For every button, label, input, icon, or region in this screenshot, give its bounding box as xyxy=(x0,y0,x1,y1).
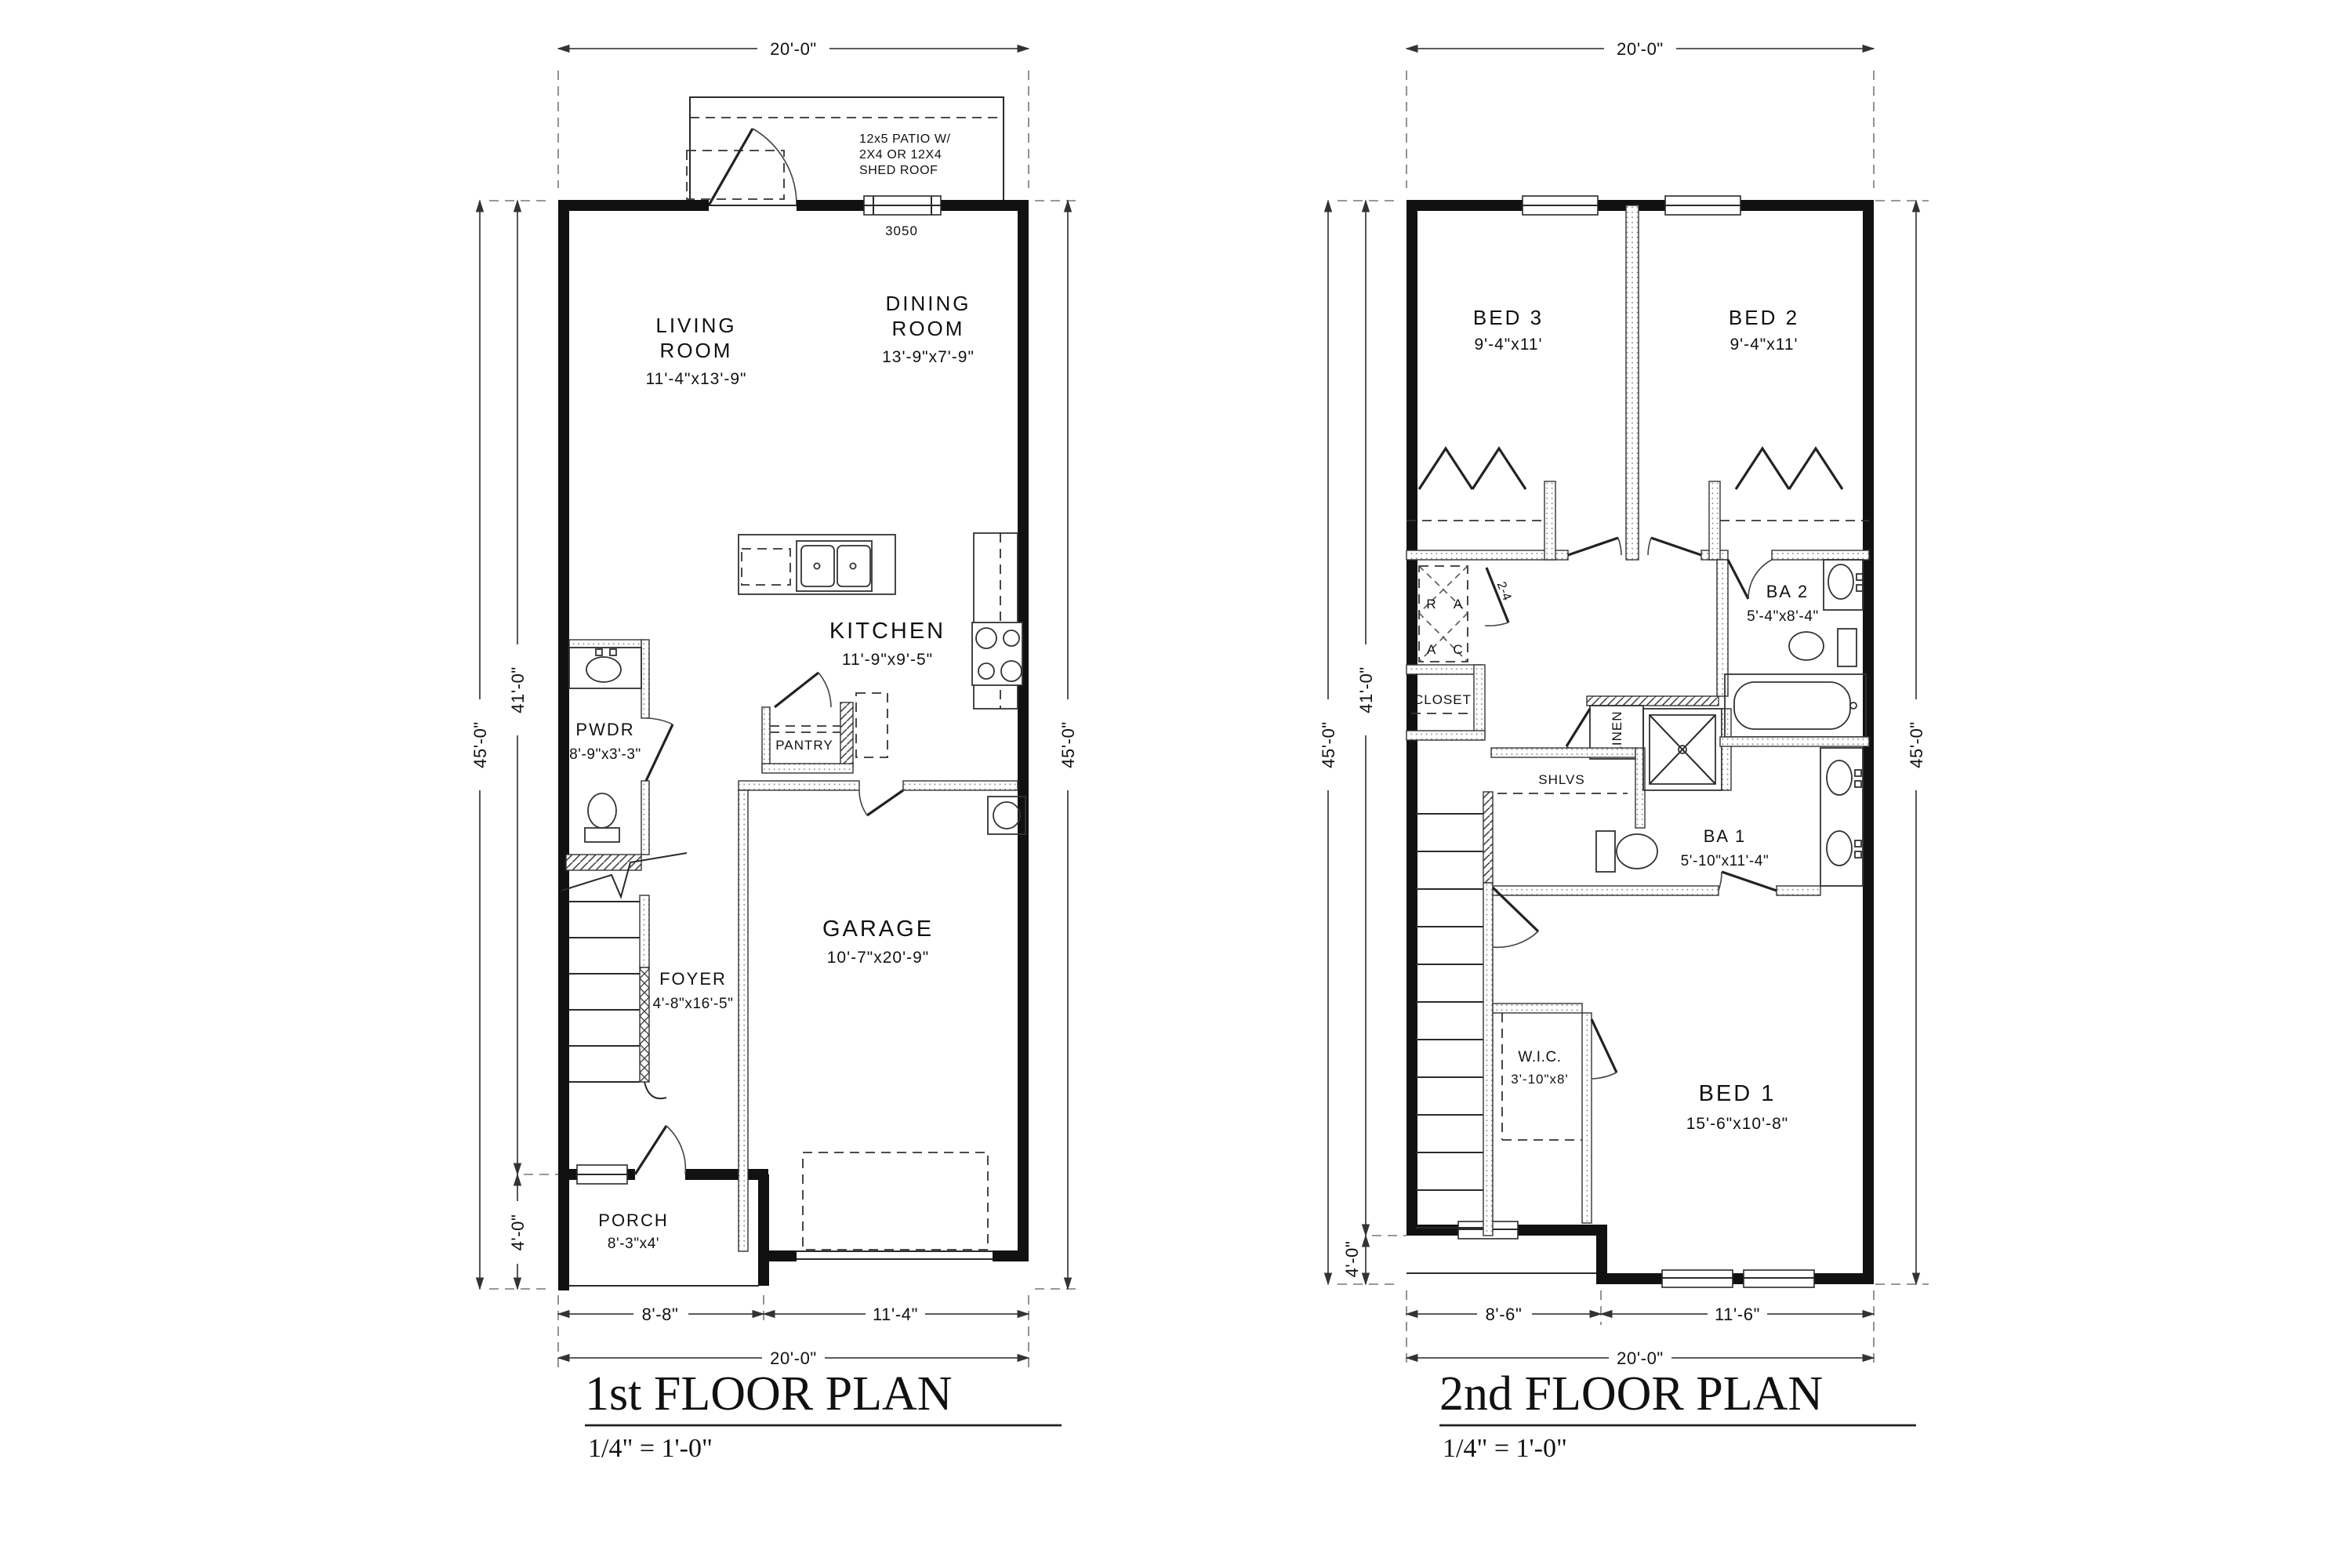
toilet-tank xyxy=(585,828,619,842)
bed3-dims: 9'-4"x11' xyxy=(1474,336,1542,354)
ba2-label: BA 2 xyxy=(1766,582,1809,601)
ba1-dims: 5'-10"x11'-4" xyxy=(1681,853,1769,869)
dim2-left-41: 41'-0" xyxy=(1356,666,1376,713)
garage-dims: 10'-7"x20'-9" xyxy=(827,949,930,967)
dining-room-label: DINING xyxy=(886,292,971,315)
hvac-a2: A xyxy=(1427,642,1436,657)
dim-bottom-20: 20'-0" xyxy=(770,1348,817,1368)
dim2-bottom-20: 20'-0" xyxy=(1617,1348,1664,1368)
drawing-sheet: 12x5 PATIO W/ 2X4 OR 12X4 SHED ROOF 3050 xyxy=(0,0,2352,1568)
second-floor-scale: 1/4" = 1'-0" xyxy=(1443,1434,1567,1463)
ba1-toilet-bowl xyxy=(1617,834,1657,869)
overhead-door-track xyxy=(803,1152,988,1250)
dim-bottom-11-4: 11'-4" xyxy=(873,1305,918,1324)
dim2-left-45: 45'-0" xyxy=(1319,721,1338,768)
dim-left-45: 45'-0" xyxy=(470,721,490,768)
kitchen-dims: 11'-9"x9'-5" xyxy=(842,651,933,669)
linen-label: LINEN xyxy=(1610,710,1624,753)
title-block-1: 1st FLOOR PLAN 1/4" = 1'-0" xyxy=(585,1367,1062,1463)
ba1-toilet-tank xyxy=(1596,831,1615,872)
ba1-sink-2 xyxy=(1827,831,1852,866)
dim2-top-20: 20'-0" xyxy=(1617,39,1664,59)
porch-window xyxy=(577,1165,627,1184)
ba2-door xyxy=(1728,560,1748,599)
title-block-2: 2nd FLOOR PLAN 1/4" = 1'-0" xyxy=(1439,1367,1916,1463)
garage-entry-door xyxy=(867,790,903,815)
second-floor-plan: R A A C 2-4 CLOSET LINEN S xyxy=(1319,38,1929,1463)
walk-in-closet: W.I.C. 3'-10"x8' xyxy=(1493,1004,1617,1223)
shower xyxy=(1643,709,1731,790)
stairs-2 xyxy=(1416,792,1538,1236)
bed1-window-right xyxy=(1744,1270,1814,1287)
first-floor-scale: 1/4" = 1'-0" xyxy=(588,1434,713,1463)
dishwasher xyxy=(742,549,790,585)
refrigerator xyxy=(856,693,887,757)
shelves-closet: SHLVS xyxy=(1491,748,1645,828)
first-floor-title: 1st FLOOR PLAN xyxy=(585,1367,953,1421)
ba2-sink xyxy=(1828,564,1853,599)
ba1-label: BA 1 xyxy=(1704,826,1746,846)
bed1-dims: 15'-6"x10'-8" xyxy=(1686,1115,1789,1133)
bed3-label: BED 3 xyxy=(1473,306,1544,329)
kitchen-window xyxy=(864,196,941,215)
linen-door xyxy=(1566,709,1590,746)
wic-dims: 3'-10"x8' xyxy=(1511,1072,1569,1087)
garage xyxy=(739,781,1025,1251)
living-room-label2: ROOM xyxy=(660,339,733,362)
sink-basin-left xyxy=(801,546,834,586)
closet-label: CLOSET xyxy=(1414,692,1472,707)
bed1-window-left xyxy=(1662,1270,1733,1287)
dim2-bottom-11-6: 11'-6" xyxy=(1715,1305,1760,1324)
bed2-door xyxy=(1648,538,1701,555)
hvac-r: R xyxy=(1426,597,1436,612)
shlvs-label: SHLVS xyxy=(1538,772,1585,787)
dim2-bottom-8-6: 8'-6" xyxy=(1486,1305,1523,1324)
range-counter xyxy=(972,533,1022,709)
bed3-door xyxy=(1568,538,1621,555)
pwdr-door xyxy=(646,724,673,781)
dim2-left-4: 4'-0" xyxy=(1342,1241,1362,1278)
patio-note-line2: 2X4 OR 12X4 xyxy=(859,148,942,162)
porch-dims: 8'-3"x4' xyxy=(608,1236,659,1252)
foyer-dims: 4'-8"x16'-5" xyxy=(653,996,734,1012)
hvac-c: C xyxy=(1453,642,1463,657)
wic-label: W.I.C. xyxy=(1518,1049,1561,1065)
dining-room-label2: ROOM xyxy=(892,317,965,340)
window-tag-3050: 3050 xyxy=(885,223,918,238)
hall-closet: CLOSET xyxy=(1406,665,1485,740)
bedroom-partition xyxy=(1406,205,1869,560)
patio-door xyxy=(709,129,753,205)
bed2-window xyxy=(1665,196,1740,215)
bed3-closet-bifold xyxy=(1419,448,1526,489)
dim2-right-45: 45'-0" xyxy=(1907,721,1926,768)
sink xyxy=(586,657,621,682)
powder-room: PWDR 8'-9"x3'-3" xyxy=(566,640,673,870)
dim-top-20: 20'-0" xyxy=(770,39,817,59)
hvac-a1: A xyxy=(1454,597,1463,612)
patio: 12x5 PATIO W/ 2X4 OR 12X4 SHED ROOF xyxy=(687,97,1004,205)
wic-door xyxy=(1592,1019,1617,1073)
kitchen-label: KITCHEN xyxy=(829,619,946,644)
dim-left-4: 4'-0" xyxy=(508,1214,528,1251)
pantry: PANTRY xyxy=(762,673,887,773)
garage-label: GARAGE xyxy=(822,916,934,942)
front-door xyxy=(635,1126,685,1174)
ba1-sink-1 xyxy=(1827,760,1852,795)
dim-left-41: 41'-0" xyxy=(508,666,528,713)
pwdr-label: PWDR xyxy=(575,720,634,739)
dim-right-45: 45'-0" xyxy=(1058,721,1078,768)
sink-basin-right xyxy=(837,546,870,586)
dim-bottom-8-8: 8'-8" xyxy=(642,1305,679,1324)
ba2-dims: 5'-4"x8'-4" xyxy=(1747,608,1819,625)
bed2-dims: 9'-4"x11' xyxy=(1730,336,1798,354)
hvac-door-tag: 2-4 xyxy=(1494,580,1514,603)
bed2-label: BED 2 xyxy=(1729,306,1799,329)
first-floor-plan: 12x5 PATIO W/ 2X4 OR 12X4 SHED ROOF 3050 xyxy=(470,38,1082,1463)
garage-door-opening xyxy=(797,1251,993,1259)
living-room-dims: 11'-4"x13'-9" xyxy=(646,370,747,388)
pwdr-dims: 8'-9"x3'-3" xyxy=(569,746,641,763)
bed1-label: BED 1 xyxy=(1699,1081,1777,1106)
toilet-bowl xyxy=(588,793,616,828)
ba1-door xyxy=(1722,872,1777,891)
ba2-toilet-bowl xyxy=(1789,632,1824,660)
hvac-unit: R A A C 2-4 xyxy=(1419,566,1514,662)
dining-room-dims: 13'-9"x7'-9" xyxy=(882,348,975,366)
living-room-label: LIVING xyxy=(655,314,736,337)
porch-label: PORCH xyxy=(598,1210,668,1230)
patio-note-line1: 12x5 PATIO W/ xyxy=(859,132,951,146)
ba2-toilet-tank xyxy=(1838,629,1857,666)
bed3-window xyxy=(1523,196,1598,215)
bathroom-1: BA 1 5'-10"x11'-4" xyxy=(1491,748,1863,895)
second-floor-title: 2nd FLOOR PLAN xyxy=(1439,1367,1823,1421)
kitchen-island xyxy=(739,535,895,594)
pantry-label: PANTRY xyxy=(775,738,833,753)
foyer-label: FOYER xyxy=(659,969,727,989)
patio-note-line3: SHED ROOF xyxy=(859,164,938,177)
pantry-door xyxy=(775,673,818,707)
bathroom-2: BA 2 5'-4"x8'-4" xyxy=(1717,560,1869,746)
bed2-closet-bifold xyxy=(1736,448,1842,489)
